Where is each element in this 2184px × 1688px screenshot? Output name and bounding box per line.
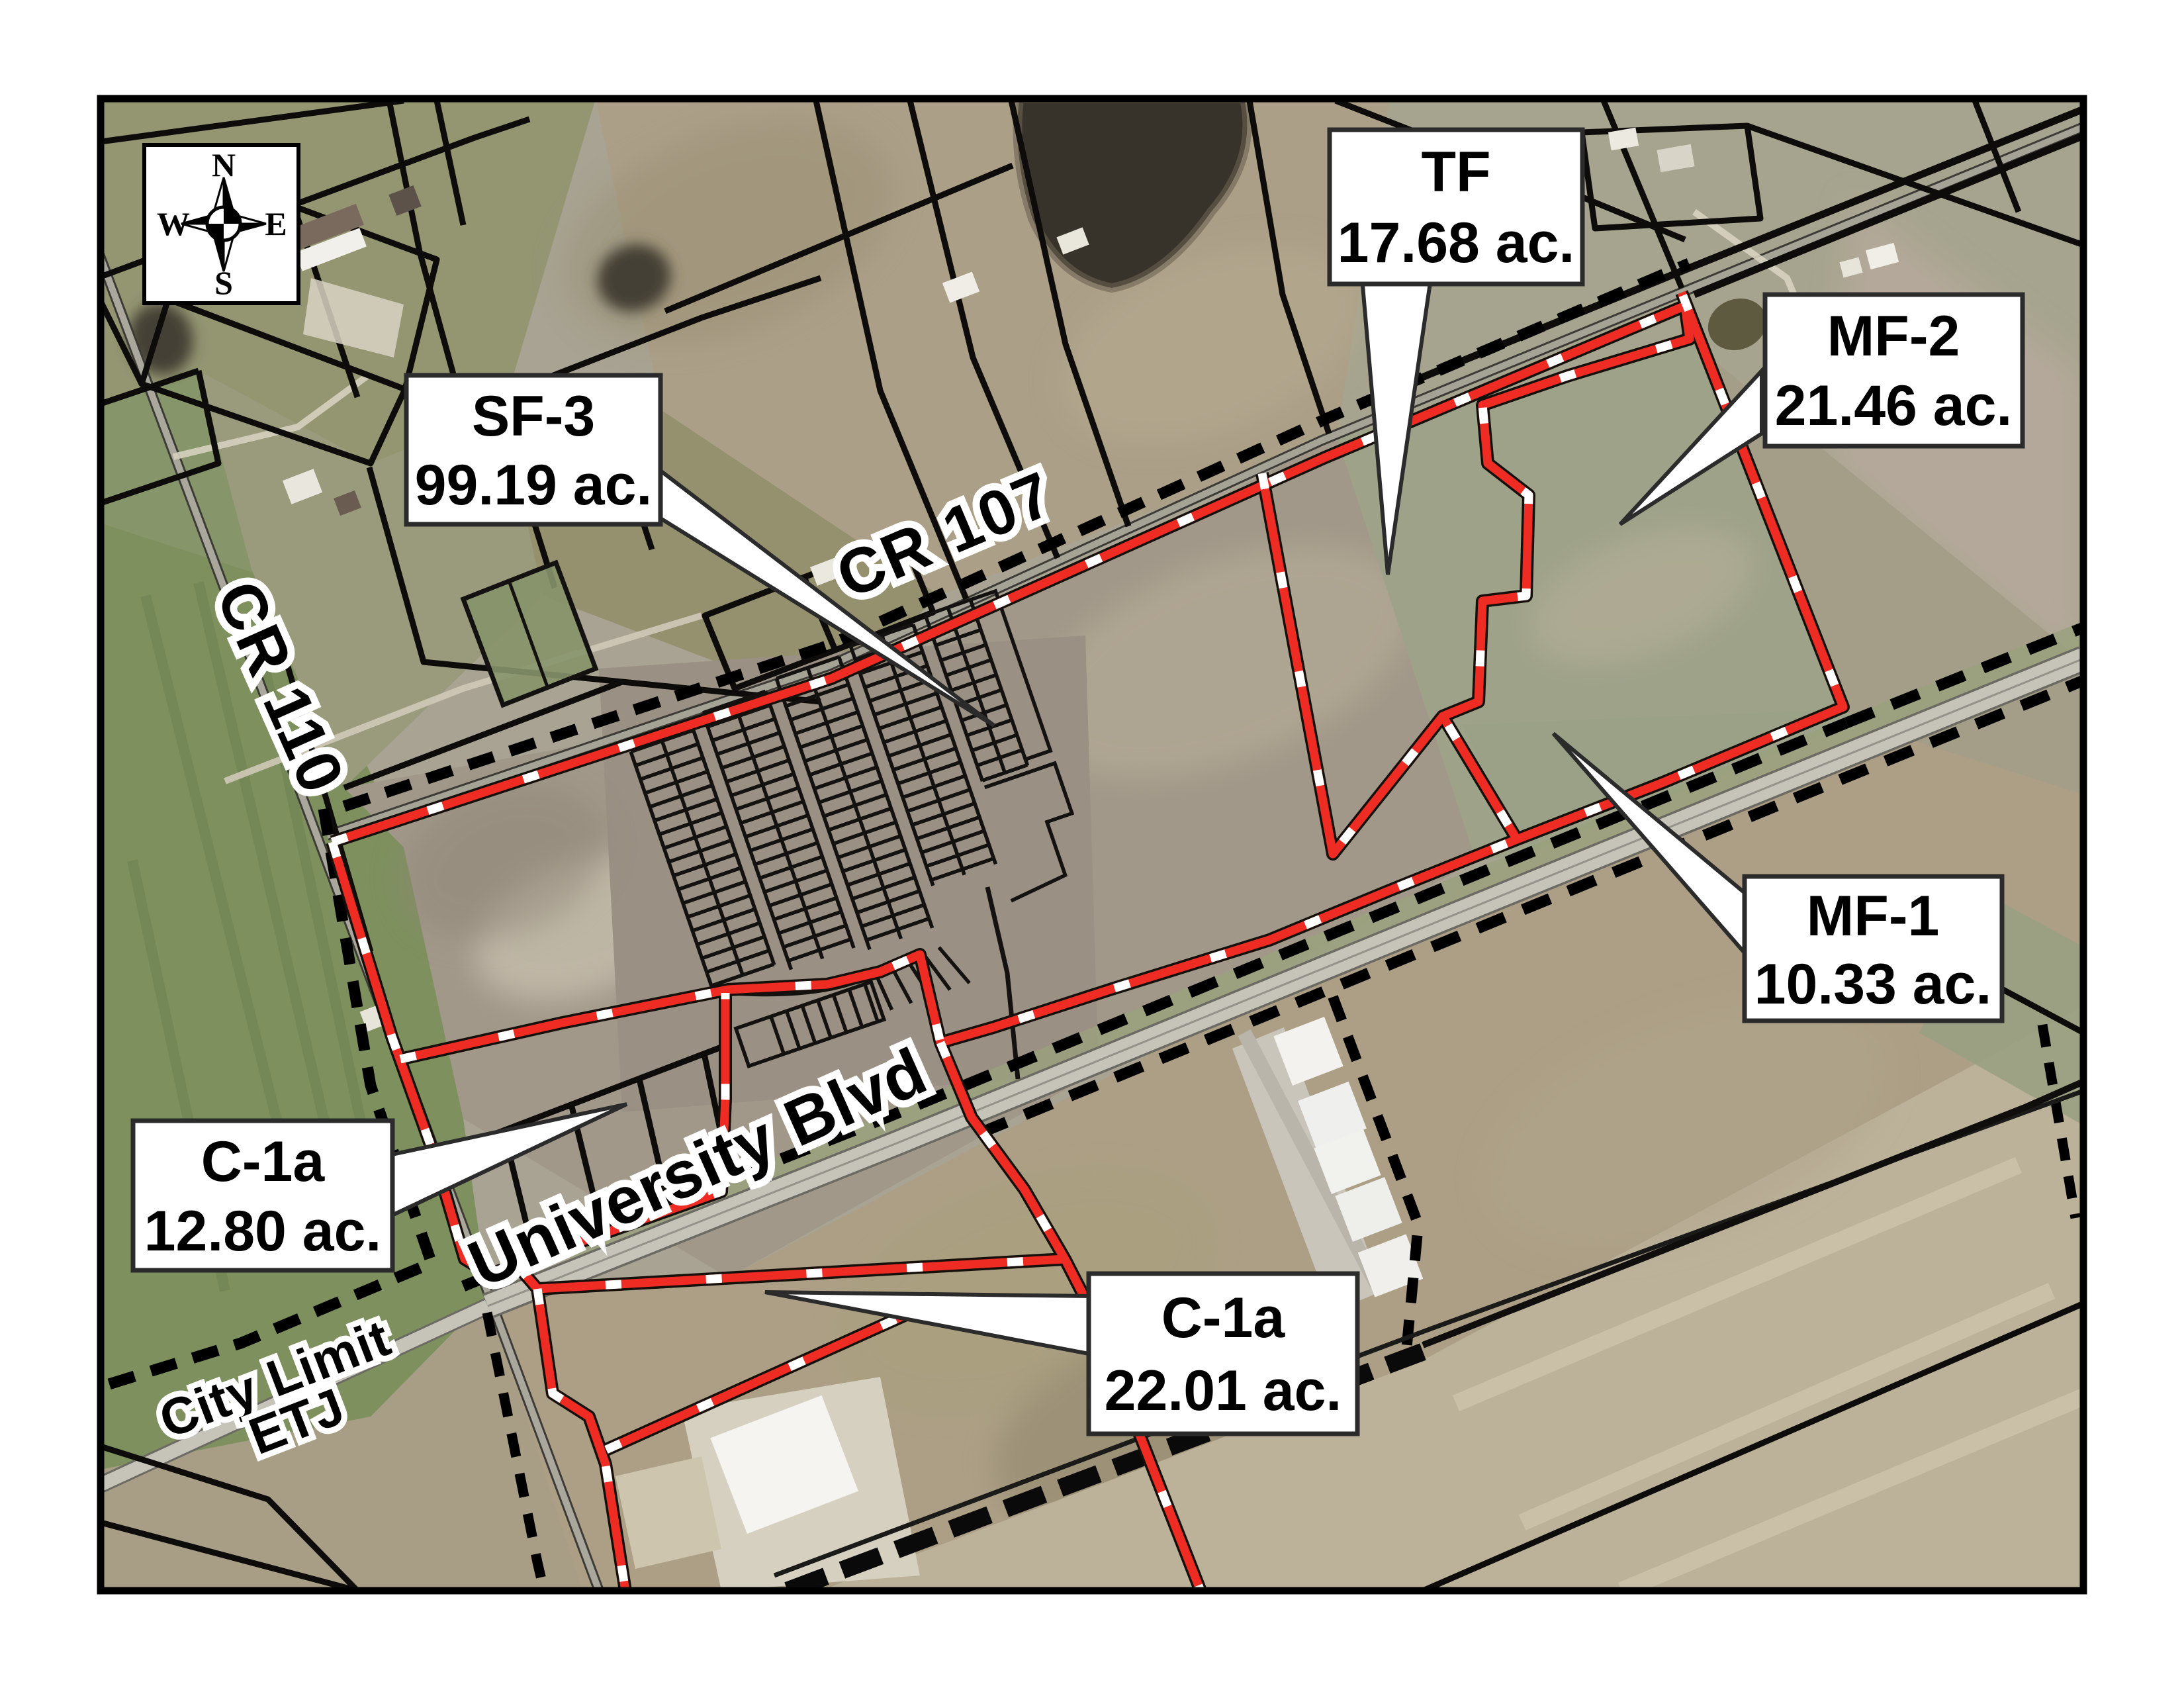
svg-text:99.19 ac.: 99.19 ac.	[415, 453, 653, 517]
svg-text:12.80 ac.: 12.80 ac.	[144, 1199, 382, 1263]
svg-text:TF: TF	[1421, 140, 1490, 204]
svg-text:N: N	[212, 146, 236, 183]
svg-text:SF-3: SF-3	[472, 385, 595, 448]
svg-text:21.46 ac.: 21.46 ac.	[1775, 374, 2013, 438]
svg-text:E: E	[265, 205, 287, 242]
svg-text:C-1a: C-1a	[201, 1130, 326, 1194]
svg-text:MF-1: MF-1	[1807, 884, 1940, 948]
svg-text:S: S	[214, 264, 233, 301]
svg-text:W: W	[157, 205, 190, 242]
svg-text:C-1a: C-1a	[1161, 1286, 1286, 1350]
svg-text:22.01 ac.: 22.01 ac.	[1105, 1359, 1342, 1423]
svg-text:MF-2: MF-2	[1827, 305, 1960, 368]
svg-text:10.33 ac.: 10.33 ac.	[1754, 953, 1992, 1016]
svg-text:17.68 ac.: 17.68 ac.	[1338, 211, 1575, 275]
